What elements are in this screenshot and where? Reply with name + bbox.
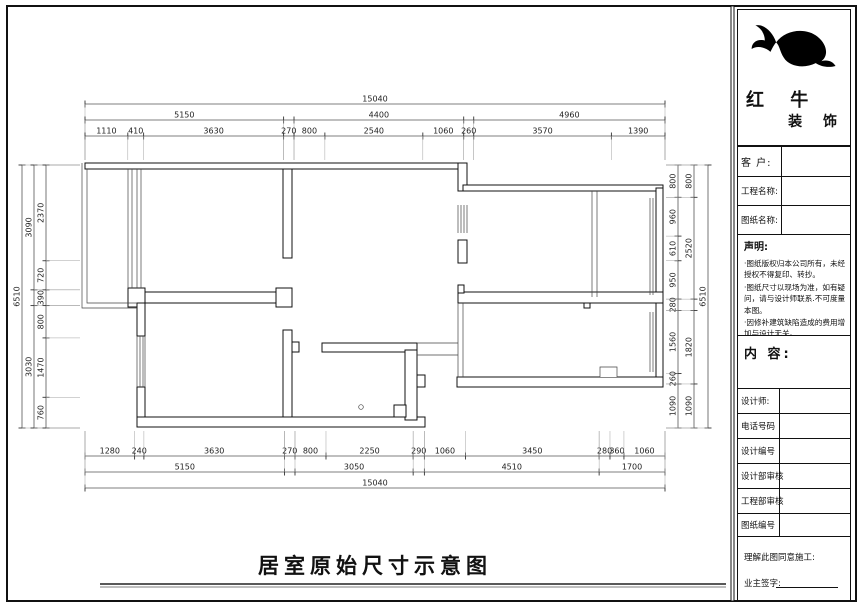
drawing-name-row: 图纸名称:	[737, 205, 851, 235]
statement-box: 声明: ·图纸版权归本公司所有，未经授权不得复印、转抄。 ·图纸尺寸以现场为准，…	[737, 234, 851, 336]
svg-text:1060: 1060	[435, 447, 455, 456]
bay-window-band	[128, 169, 141, 288]
svg-text:800: 800	[669, 174, 678, 189]
bull-logo-icon	[746, 16, 844, 82]
project-label: 工程名称:	[738, 177, 782, 205]
passage-lines	[417, 343, 458, 355]
title-underline	[100, 584, 726, 587]
svg-text:3450: 3450	[522, 447, 542, 456]
svg-text:1560: 1560	[669, 332, 678, 352]
svg-text:2540: 2540	[364, 127, 384, 136]
floor-plan-svg: 1504051504400496011104103630270800254010…	[0, 0, 860, 612]
svg-text:1470: 1470	[37, 357, 46, 377]
svg-text:950: 950	[669, 272, 678, 287]
walls	[85, 163, 663, 427]
svg-text:2370: 2370	[37, 203, 46, 223]
svg-text:2520: 2520	[685, 238, 694, 258]
svg-text:800: 800	[302, 127, 317, 136]
drawing-no-label: 图纸编号	[738, 514, 780, 536]
designer-label: 设计师:	[738, 389, 780, 413]
drawing-sheet: 1504051504400496011104103630270800254010…	[0, 0, 860, 612]
svg-text:1090: 1090	[685, 396, 694, 416]
svg-text:3090: 3090	[25, 217, 34, 237]
svg-text:1090: 1090	[669, 396, 678, 416]
svg-text:6510: 6510	[699, 286, 708, 306]
svg-text:3050: 3050	[344, 463, 364, 472]
statement-heading: 声明:	[744, 240, 846, 255]
design-review-label: 设计部审核	[738, 464, 780, 488]
svg-text:1280: 1280	[100, 447, 120, 456]
floor-drain	[359, 405, 364, 410]
svg-text:5150: 5150	[174, 111, 194, 120]
svg-text:3630: 3630	[204, 447, 224, 456]
svg-text:3030: 3030	[25, 357, 34, 377]
top-right-partition	[592, 191, 597, 297]
design-review-row: 设计部审核	[737, 463, 851, 489]
statement-item: ·图纸版权归本公司所有，未经授权不得复印、转抄。	[744, 258, 846, 281]
svg-text:800: 800	[303, 447, 318, 456]
svg-text:360: 360	[609, 447, 624, 456]
content-heading: 内 容:	[738, 336, 850, 362]
svg-text:800: 800	[37, 314, 46, 329]
phone-row: 电话号码	[737, 413, 851, 439]
svg-text:4510: 4510	[502, 463, 522, 472]
bay-inner-line	[87, 169, 137, 303]
svg-text:1060: 1060	[433, 127, 453, 136]
logo-box: 红 牛 装 饰	[737, 9, 851, 146]
right-wall-window	[650, 198, 653, 372]
svg-text:4960: 4960	[559, 111, 579, 120]
drawing-no-row: 图纸编号	[737, 513, 851, 537]
svg-text:1820: 1820	[685, 337, 694, 357]
windows-and-glazing	[82, 163, 653, 409]
bay-outer-line	[82, 163, 137, 308]
drawing-title: 居室原始尺寸示意图	[85, 550, 665, 580]
signoff-statement: 理解此图同意施工:	[744, 551, 815, 563]
brand-suffix: 装 饰	[788, 111, 845, 131]
svg-text:240: 240	[132, 447, 147, 456]
svg-text:610: 610	[669, 241, 678, 256]
engineering-review-row: 工程部审核	[737, 488, 851, 514]
svg-text:6510: 6510	[13, 286, 22, 306]
svg-text:5150: 5150	[175, 463, 195, 472]
svg-text:3630: 3630	[203, 127, 223, 136]
engineering-review-label: 工程部审核	[738, 489, 780, 513]
signature-line	[776, 587, 838, 588]
svg-text:720: 720	[37, 268, 46, 283]
svg-text:15040: 15040	[362, 479, 387, 488]
left-wall-window	[137, 336, 145, 387]
content-box: 内 容:	[737, 335, 851, 389]
signoff-box: 理解此图同意施工: 业主签字:	[737, 536, 851, 601]
drawing-name-label: 图纸名称:	[738, 206, 782, 234]
duct-notch	[600, 367, 617, 377]
design-no-label: 设计编号	[738, 439, 780, 463]
svg-text:1700: 1700	[622, 463, 642, 472]
phone-label: 电话号码	[738, 414, 780, 438]
svg-text:1390: 1390	[628, 127, 648, 136]
svg-text:2250: 2250	[359, 447, 379, 456]
svg-text:1110: 1110	[96, 127, 116, 136]
mid-wall-window	[458, 205, 467, 233]
project-row: 工程名称:	[737, 176, 851, 206]
svg-text:1060: 1060	[634, 447, 654, 456]
svg-text:390: 390	[37, 290, 46, 305]
svg-text:4400: 4400	[369, 111, 389, 120]
statement-item: ·图纸尺寸以现场为准，如有疑问，请与设计师联系.不可度量本图。	[744, 282, 846, 316]
client-label: 客 户:	[738, 147, 782, 176]
svg-text:760: 760	[37, 405, 46, 420]
svg-text:800: 800	[685, 174, 694, 189]
svg-text:3570: 3570	[532, 127, 552, 136]
svg-text:410: 410	[128, 127, 143, 136]
svg-text:15040: 15040	[362, 95, 387, 104]
client-row: 客 户:	[737, 146, 851, 177]
brand-name: 红 牛	[746, 86, 818, 112]
lower-right-room-left-wall	[458, 303, 463, 377]
design-no-row: 设计编号	[737, 438, 851, 464]
designer-row: 设计师:	[737, 388, 851, 414]
svg-text:960: 960	[669, 209, 678, 224]
